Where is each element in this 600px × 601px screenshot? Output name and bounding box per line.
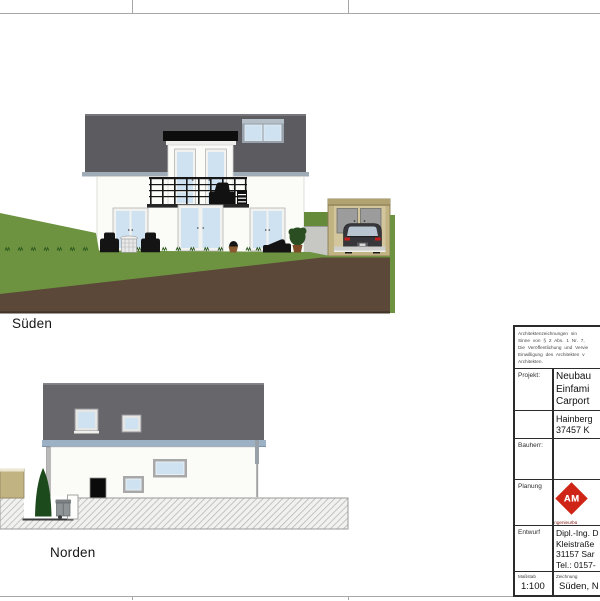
bauherr-row: Bauherr: bbox=[515, 438, 600, 480]
basement-window bbox=[90, 478, 106, 498]
title-block: Architektenzeichnungen sin Sinne von § 2… bbox=[513, 325, 600, 597]
planung-logo: AM bbox=[555, 482, 588, 515]
projekt-value: Neubau Einfami Carport bbox=[556, 371, 591, 409]
north-elevation bbox=[0, 383, 348, 529]
elevation-drawings bbox=[0, 0, 600, 600]
projekt-label: Projekt: bbox=[518, 372, 540, 379]
waste-bin bbox=[56, 500, 72, 520]
north-window-small bbox=[123, 476, 144, 493]
south-roof-window bbox=[242, 119, 284, 143]
ground-section bbox=[0, 495, 348, 529]
north-eaves-gutter bbox=[42, 440, 266, 447]
entwurf-row: Entwurf Dipl.-Ing. D Kleistraße 31157 Sa… bbox=[515, 525, 600, 572]
license-plate bbox=[360, 244, 366, 247]
planung-row: Planung AM Ingenieurbü bbox=[515, 479, 600, 526]
address-row: Hainberg 37457 K bbox=[515, 410, 600, 439]
roof-skylight bbox=[74, 409, 99, 434]
massstab-label: Maßstab bbox=[518, 574, 536, 579]
ridge-line bbox=[85, 114, 306, 116]
copyright-note: Architektenzeichnungen sin Sinne von § 2… bbox=[518, 330, 588, 365]
tail-light bbox=[375, 238, 381, 241]
zeichnung-value: Süden, N bbox=[559, 581, 599, 592]
title-block-column-divider bbox=[552, 368, 554, 595]
terrace-door bbox=[178, 205, 223, 251]
garden-table bbox=[121, 236, 138, 252]
scale-drawing-row: Maßstab 1:100 Zeichnung Süden, N bbox=[515, 571, 600, 596]
project-address: Hainberg 37457 K bbox=[556, 414, 593, 436]
entwurf-value: Dipl.-Ing. D Kleistraße 31157 Sar Tel.: … bbox=[556, 528, 599, 570]
entwurf-label: Entwurf bbox=[518, 529, 540, 536]
south-elevation bbox=[0, 114, 395, 314]
retaining-wall bbox=[0, 469, 24, 499]
roof-skylight bbox=[122, 415, 141, 432]
dormer-flat-roof bbox=[163, 131, 238, 141]
massstab-value: 1:100 bbox=[521, 581, 545, 592]
projekt-row: Projekt: Neubau Einfami Carport bbox=[515, 368, 600, 411]
logo-text: AM bbox=[564, 493, 580, 504]
bauherr-label: Bauherr: bbox=[518, 442, 543, 449]
carport bbox=[328, 199, 390, 257]
windshield bbox=[347, 227, 378, 237]
north-house bbox=[42, 383, 266, 499]
north-view-label: Norden bbox=[50, 545, 95, 560]
south-view-label: Süden bbox=[12, 316, 52, 331]
north-window-wide bbox=[153, 459, 187, 478]
tail-light bbox=[345, 238, 351, 241]
south-house bbox=[82, 114, 309, 255]
zeichnung-label: Zeichnung bbox=[556, 574, 577, 579]
planung-label: Planung bbox=[518, 483, 542, 490]
plan-sheet: Süden Norden Architektenzeichnungen sin … bbox=[0, 0, 600, 600]
fence-and-hedge bbox=[304, 212, 329, 257]
